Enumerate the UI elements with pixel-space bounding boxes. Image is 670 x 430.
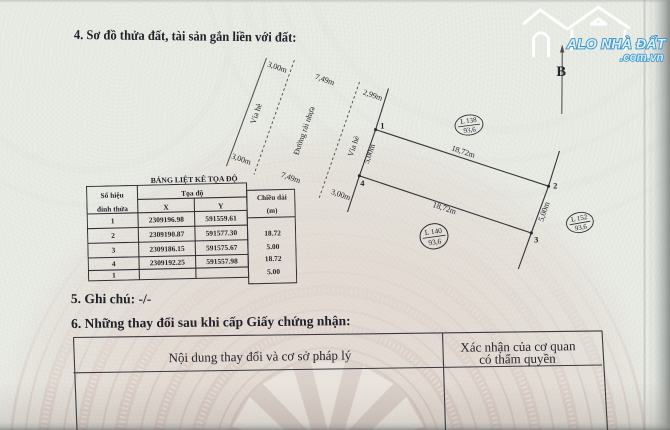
svg-text:đỉnh thửa: đỉnh thửa: [97, 204, 128, 214]
svg-text:Chiều dài: Chiều dài: [257, 192, 287, 202]
svg-text:591557.98: 591557.98: [207, 256, 239, 266]
svg-text:X: X: [164, 203, 170, 212]
svg-text:18,72m: 18,72m: [432, 200, 459, 216]
svg-text:591575.67: 591575.67: [206, 243, 238, 253]
svg-text:2,99m: 2,99m: [362, 88, 385, 103]
svg-text:Số hiệu: Số hiệu: [101, 190, 124, 200]
svg-text:2309186.15: 2309186.15: [150, 244, 186, 254]
svg-text:93,6: 93,6: [428, 237, 442, 248]
svg-text:3: 3: [112, 245, 116, 254]
svg-text:Vỉa hè: Vỉa hè: [248, 102, 264, 125]
svg-text:5.00: 5.00: [267, 267, 280, 276]
svg-text:591559.61: 591559.61: [206, 213, 238, 223]
svg-text:1: 1: [112, 270, 116, 279]
svg-text:7,49m: 7,49m: [314, 72, 337, 87]
svg-text:L 138: L 138: [460, 116, 478, 126]
svg-text:3,00m: 3,00m: [330, 187, 353, 202]
svg-text:2309190.87: 2309190.87: [149, 229, 185, 239]
svg-text:L 140: L 140: [424, 226, 443, 237]
svg-text:3,00m: 3,00m: [266, 60, 289, 75]
svg-text:4: 4: [112, 259, 116, 268]
svg-text:2309196.98: 2309196.98: [149, 215, 185, 225]
svg-text:1: 1: [380, 121, 384, 131]
svg-text:Đường rải nhựa: Đường rải nhựa: [292, 105, 317, 156]
svg-text:2: 2: [111, 231, 115, 240]
svg-text:5,00m: 5,00m: [362, 142, 377, 165]
svg-text:18.72: 18.72: [265, 228, 282, 237]
svg-text:Vỉa hè: Vỉa hè: [346, 134, 362, 157]
svg-text:1: 1: [111, 216, 115, 225]
svg-text:(m): (m): [267, 207, 279, 215]
svg-text:B: B: [556, 64, 566, 80]
svg-text:Nội dung thay đổi và cơ sở phá: Nội dung thay đổi và cơ sở pháp lý: [168, 348, 351, 366]
svg-text:5,00m: 5,00m: [536, 200, 551, 223]
svg-text:3: 3: [534, 234, 538, 244]
svg-text:5.00: 5.00: [267, 242, 280, 251]
svg-text:2309192.25: 2309192.25: [150, 257, 186, 267]
svg-text:có thẩm quyền: có thẩm quyền: [479, 351, 556, 367]
svg-text:591577.30: 591577.30: [206, 228, 238, 238]
svg-text:2: 2: [553, 180, 557, 190]
svg-text:18,72m: 18,72m: [450, 144, 477, 160]
svg-text:Y: Y: [218, 201, 224, 210]
svg-text:93,6: 93,6: [463, 125, 477, 134]
svg-text:18.72: 18.72: [265, 254, 282, 263]
svg-text:4: 4: [360, 178, 365, 188]
svg-text:3,00m: 3,00m: [230, 152, 253, 167]
svg-text:Tọa độ: Tọa độ: [181, 188, 204, 198]
